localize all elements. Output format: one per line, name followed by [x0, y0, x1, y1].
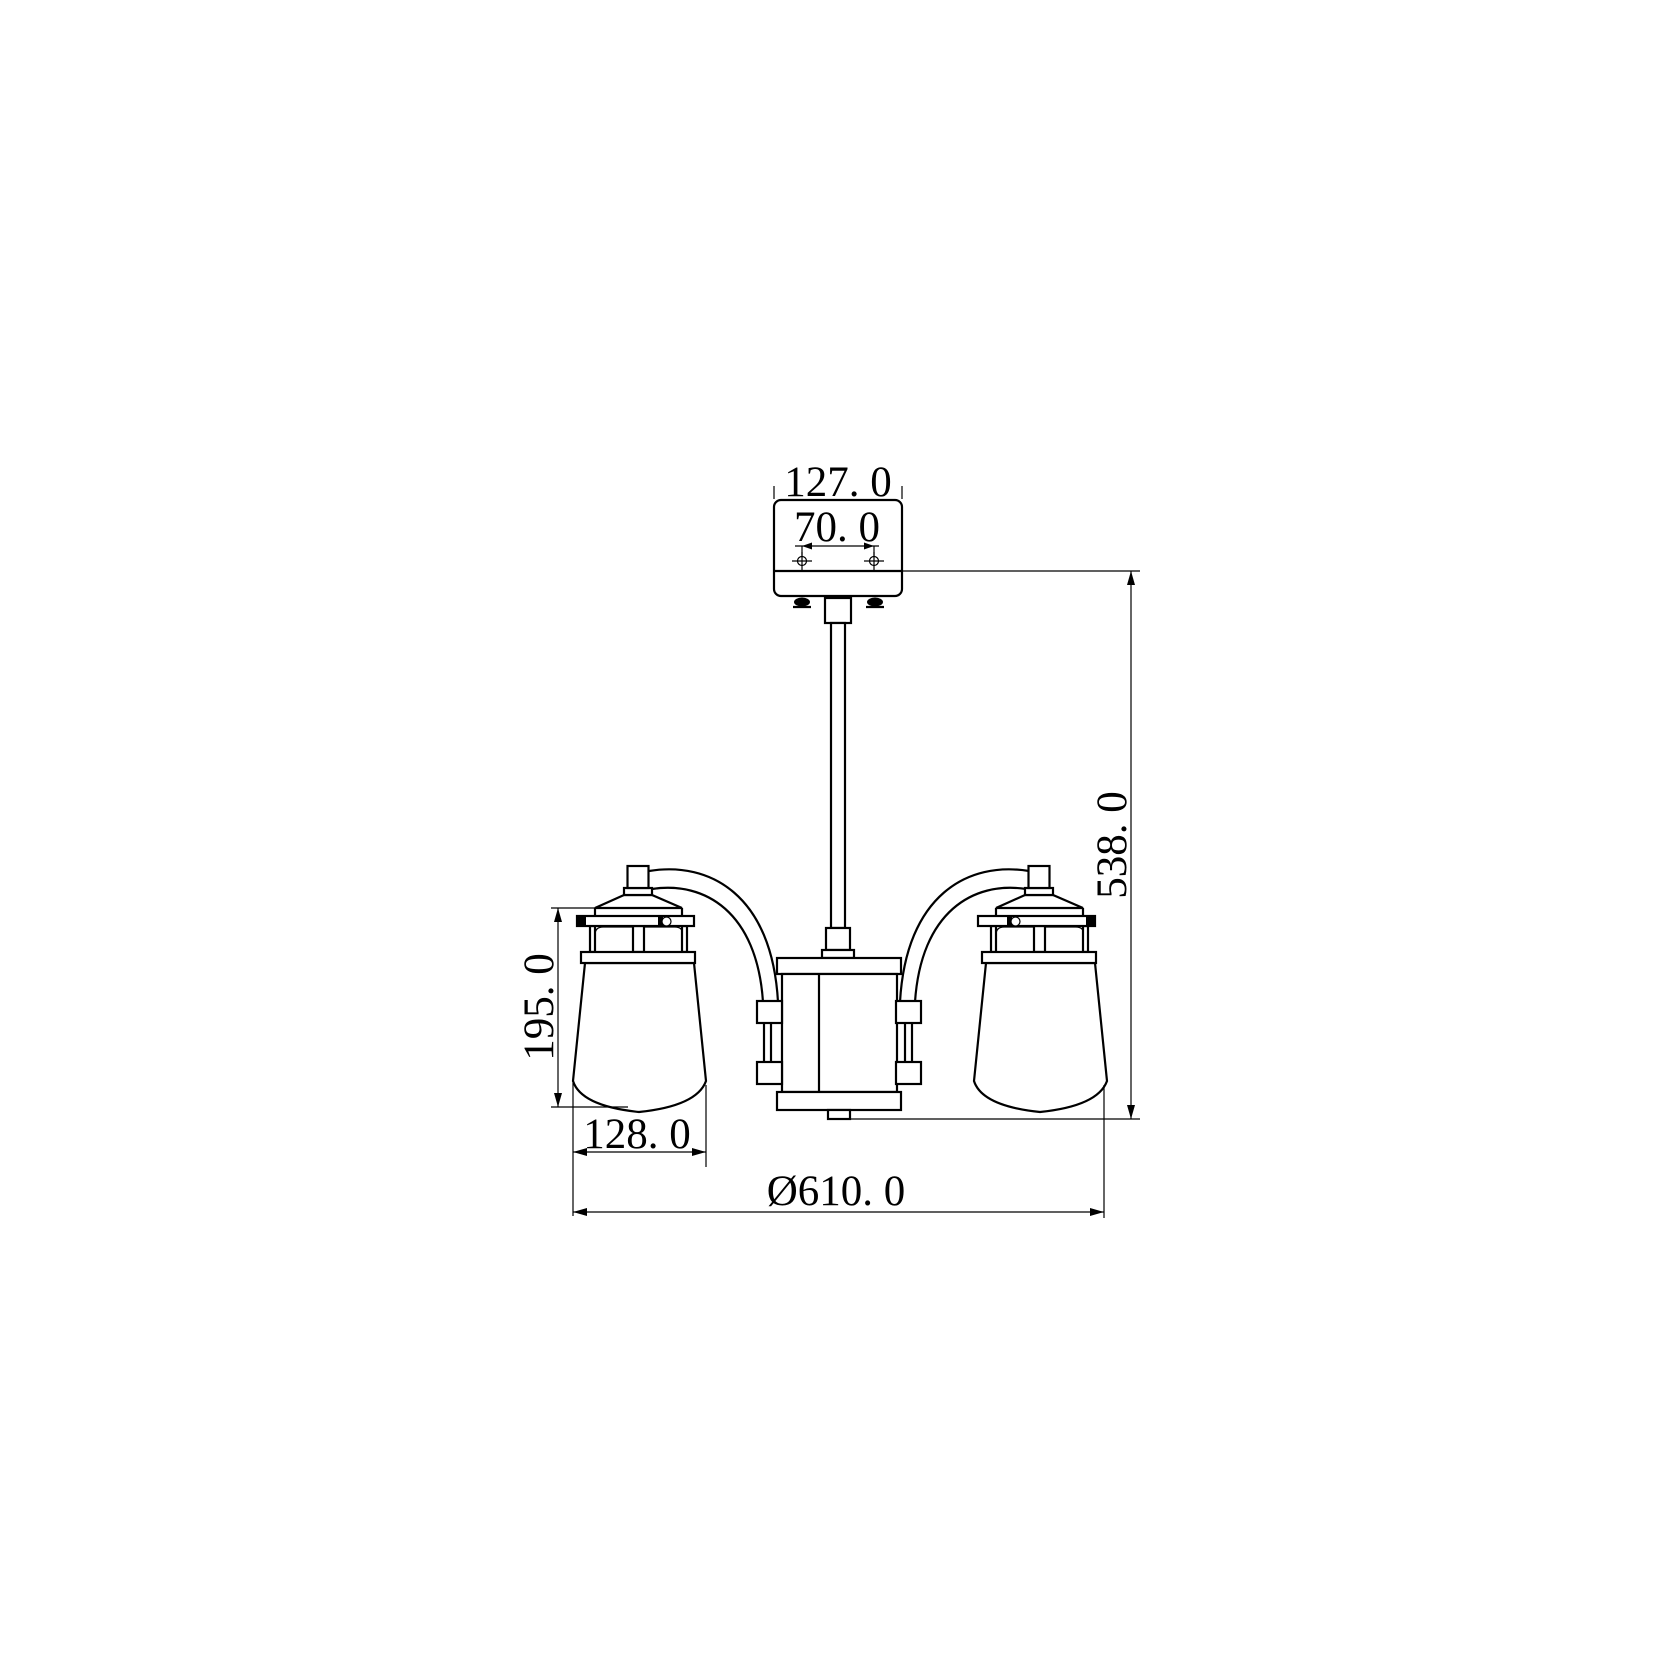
left-band-knob: [662, 917, 671, 926]
cage-tab-left-upper: [757, 1001, 782, 1023]
body-drum: [782, 974, 897, 1092]
left-band-end-block: [577, 916, 586, 926]
dim-538-label: 538. 0: [1089, 791, 1136, 899]
right-finial: [1029, 866, 1050, 888]
dim-195-arrow-top: [554, 908, 562, 922]
stem-top-connector: [825, 598, 851, 623]
dim-70-label: 70. 0: [794, 504, 880, 551]
left-cage-post-center: [633, 926, 644, 952]
body-bottom-tab: [828, 1110, 850, 1119]
left-lower-band: [581, 952, 695, 963]
hanging-stem: [822, 598, 854, 958]
left-cage-post-outer-l: [590, 926, 595, 952]
right-lantern: [974, 866, 1107, 1112]
left-upper-band: [577, 916, 694, 926]
right-band-end-block: [1086, 916, 1095, 926]
stem-tube: [831, 623, 845, 928]
dimension-hole-spacing: 70. 0: [794, 504, 880, 556]
right-cage-post-center: [1034, 926, 1045, 952]
technical-drawing-page: 127. 0 70. 0 538. 0 195. 0 128. 0: [0, 0, 1669, 1669]
dim-610-arrow-left: [573, 1208, 587, 1216]
dimension-canopy-width: 127. 0: [774, 459, 902, 506]
canopy-screw-left: [793, 598, 811, 608]
cage-tab-right-lower: [896, 1062, 921, 1084]
cage-tab-right-upper: [896, 1001, 921, 1023]
dim-127-label: 127. 0: [784, 459, 892, 506]
dim-195-label: 195. 0: [516, 953, 563, 1061]
cage-tab-left-lower: [757, 1062, 782, 1084]
dim-538-arrow-bottom: [1127, 1105, 1135, 1119]
left-lantern: [573, 866, 706, 1112]
body-side-cage-right: [896, 1001, 921, 1084]
right-shade: [974, 963, 1107, 1112]
stem-bottom-connector: [826, 928, 850, 950]
central-body: [757, 958, 921, 1119]
screw-head-right: [867, 598, 883, 607]
right-cage-post-outer-r: [1083, 926, 1088, 952]
left-cage-post-outer-r: [682, 926, 687, 952]
stem-bottom-flange: [822, 950, 854, 958]
dim-128-label: 128. 0: [583, 1111, 691, 1158]
body-side-cage-left: [757, 1001, 782, 1084]
right-roof: [996, 895, 1083, 908]
dim-610-label: Ø610. 0: [767, 1168, 906, 1215]
chandelier-dimension-drawing: 127. 0 70. 0 538. 0 195. 0 128. 0: [0, 0, 1669, 1669]
right-upper-band: [978, 916, 1095, 926]
right-lower-band: [982, 952, 1096, 963]
canopy-screw-right: [866, 598, 884, 608]
screw-head-left: [794, 598, 810, 607]
right-cage-post-outer-l: [991, 926, 996, 952]
left-roof: [595, 895, 682, 908]
dim-128-arrow-right: [692, 1148, 706, 1156]
dim-195-arrow-bottom: [554, 1093, 562, 1107]
body-bottom-band: [777, 1092, 901, 1110]
dim-610-arrow-right: [1090, 1208, 1104, 1216]
left-shade: [573, 963, 706, 1112]
body-top-band: [777, 958, 901, 974]
dim-538-arrow-top: [1127, 571, 1135, 585]
right-band-knob: [1011, 917, 1020, 926]
left-finial: [628, 866, 649, 888]
